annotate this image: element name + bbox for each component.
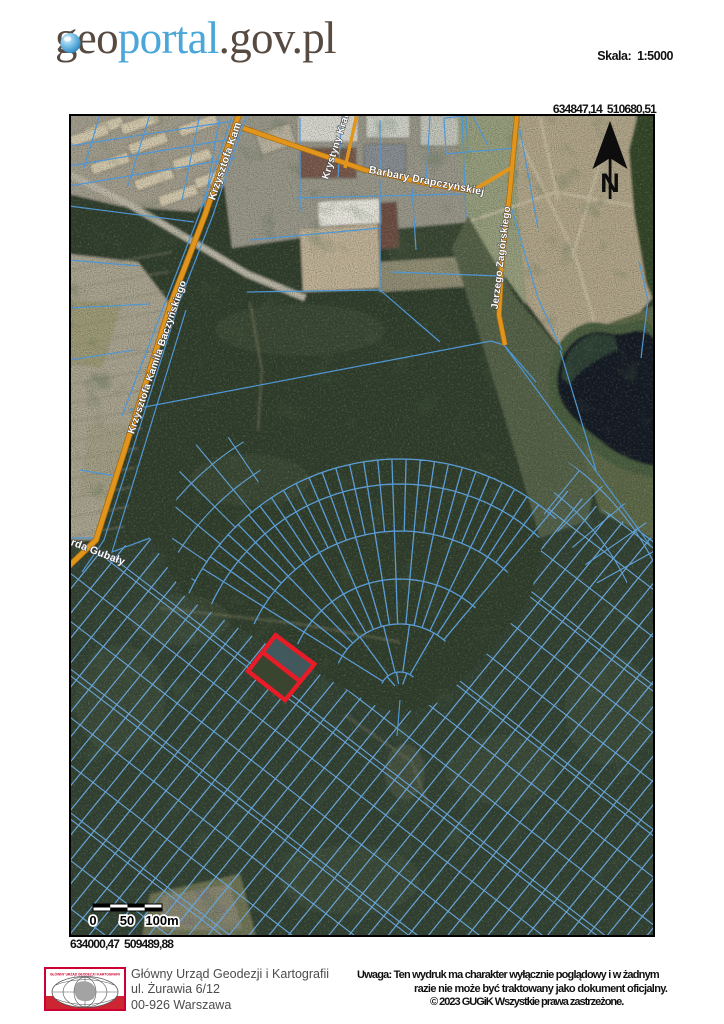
svg-text:50: 50 — [120, 913, 134, 928]
svg-text:GŁÓWNY URZĄD GEODEZJI I KARTOG: GŁÓWNY URZĄD GEODEZJI I KARTOGRAFII — [50, 972, 120, 977]
svg-text:N: N — [600, 168, 620, 198]
svg-text:0: 0 — [89, 913, 96, 928]
svg-text:100m: 100m — [145, 913, 178, 928]
